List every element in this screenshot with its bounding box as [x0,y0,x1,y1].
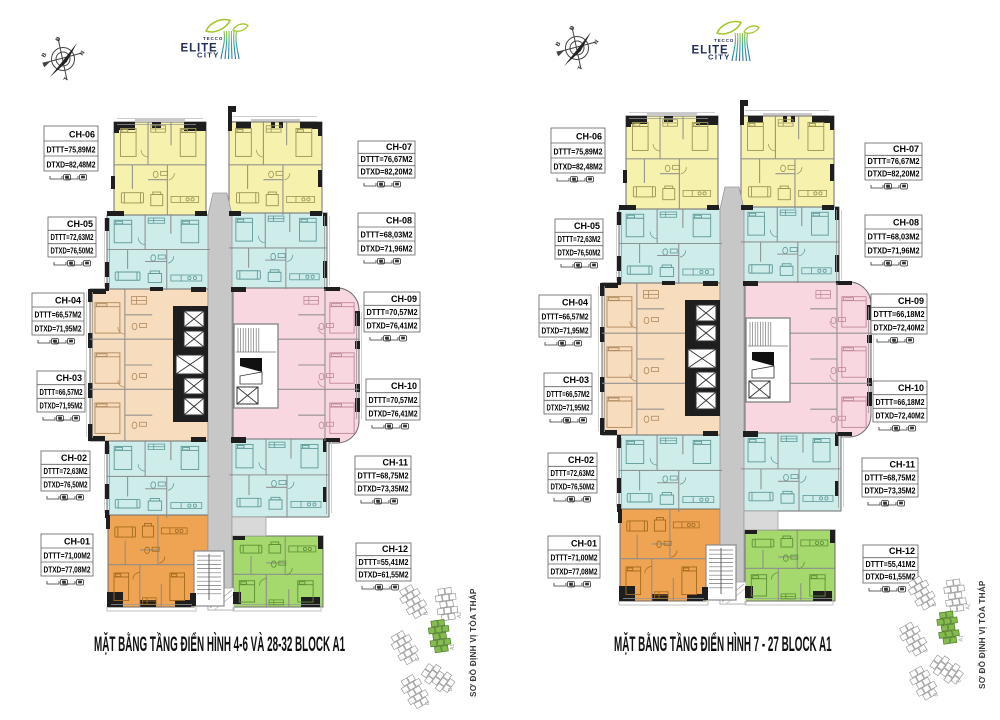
svg-text:DTXD=76,50M2: DTXD=76,50M2 [44,480,88,490]
svg-text:SƠ ĐỒ ĐỊNH VỊ TÒA THÁP: SƠ ĐỒ ĐỊNH VỊ TÒA THÁP [976,580,987,689]
svg-text:CH-03: CH-03 [56,373,82,383]
svg-text:DTXD=71,96M2: DTXD=71,96M2 [868,246,920,256]
svg-text:DTTT=66,57M2: DTTT=66,57M2 [547,389,590,399]
svg-text:DTXD=82,48M2: DTXD=82,48M2 [554,162,603,172]
svg-text:CH-02: CH-02 [61,453,87,463]
svg-text:TECCO: TECCO [203,36,223,41]
svg-text:A1: A1 [959,635,965,641]
svg-text:DTTT=70,57M2: DTTT=70,57M2 [369,395,418,405]
svg-text:DTXD=76,50M2: DTXD=76,50M2 [558,248,601,258]
svg-text:CH-06: CH-06 [69,130,95,140]
svg-text:DTTT=66,18M2: DTTT=66,18M2 [874,309,925,319]
svg-text:DTXD=76,41M2: DTXD=76,41M2 [367,321,418,331]
svg-text:DTTT=72,63M2: DTTT=72,63M2 [558,234,601,244]
svg-text:CH-08: CH-08 [386,216,412,226]
svg-text:CH-02: CH-02 [568,455,594,465]
svg-text:DTTT=55,41M2: DTTT=55,41M2 [866,559,916,569]
svg-text:CH-05: CH-05 [67,219,93,229]
svg-text:DTTT=75,89M2: DTTT=75,89M2 [47,145,96,155]
svg-text:DTTT=68,03M2: DTTT=68,03M2 [361,230,413,240]
svg-text:CH-07: CH-07 [893,144,919,154]
svg-text:DTXD=72,40M2: DTXD=72,40M2 [876,411,925,421]
svg-text:DTXD=71,96M2: DTXD=71,96M2 [361,244,413,254]
svg-text:MẶT BẰNG TẦNG ĐIỂN HÌNH 4-6 VÀ: MẶT BẰNG TẦNG ĐIỂN HÌNH 4-6 VÀ 28-32 BLO… [94,632,345,656]
svg-text:DTXD=72,40M2: DTXD=72,40M2 [874,323,925,333]
svg-text:DTXD=61,55M2: DTXD=61,55M2 [866,572,916,582]
svg-text:CH-04: CH-04 [562,298,588,308]
svg-text:DTTT=68,03M2: DTTT=68,03M2 [868,232,920,242]
svg-text:DTTT=66,57M2: DTTT=66,57M2 [35,310,82,320]
svg-text:DTTT=68,75M2: DTTT=68,75M2 [865,473,916,483]
svg-text:DTXD=71,95M2: DTXD=71,95M2 [40,401,83,411]
svg-text:CH-07: CH-07 [386,142,412,152]
svg-text:CH-05: CH-05 [574,221,600,231]
svg-text:DTXD=71,95M2: DTXD=71,95M2 [542,326,589,336]
svg-text:CH-11: CH-11 [889,460,915,470]
svg-text:DTTT=76,67M2: DTTT=76,67M2 [361,154,413,164]
svg-text:CH-09: CH-09 [391,294,417,304]
svg-text:DTXD=77,08M2: DTXD=77,08M2 [551,567,598,577]
svg-text:C: C [924,649,930,653]
svg-text:D: D [934,693,940,697]
svg-text:DTTT=72,63M2: DTTT=72,63M2 [51,232,94,242]
svg-text:CH-01: CH-01 [64,537,90,547]
svg-text:DTXD=77,08M2: DTXD=77,08M2 [44,565,91,575]
svg-text:DTTT=76,67M2: DTTT=76,67M2 [868,156,920,166]
svg-text:DTXD=71,95M2: DTXD=71,95M2 [35,324,82,334]
svg-text:DTTT=66,18M2: DTTT=66,18M2 [876,397,925,407]
svg-text:DTTT=72,63M2: DTTT=72,63M2 [44,466,88,476]
svg-text:MẶT BẰNG TẦNG ĐIỂN HÌNH 7 - 27: MẶT BẰNG TẦNG ĐIỂN HÌNH 7 - 27 BLOCK A1 [614,632,832,656]
svg-text:DTTT=71,00M2: DTTT=71,00M2 [44,551,91,561]
svg-text:DTXD=76,41M2: DTXD=76,41M2 [369,409,418,419]
svg-text:DTTT=72,63M2: DTTT=72,63M2 [551,468,595,478]
svg-text:CH-10: CH-10 [898,383,924,393]
svg-text:DTTT=55,41M2: DTTT=55,41M2 [359,557,409,567]
svg-text:DTTT=66,57M2: DTTT=66,57M2 [40,387,83,397]
svg-text:A2: A2 [966,603,972,609]
svg-text:CH-03: CH-03 [563,375,589,385]
svg-text:CH-09: CH-09 [898,296,924,306]
svg-text:DTXD=82,48M2: DTXD=82,48M2 [47,160,96,170]
svg-text:CH-12: CH-12 [889,546,915,556]
svg-text:DTXD=76,50M2: DTXD=76,50M2 [51,246,94,256]
svg-text:SƠ ĐỒ ĐỊNH VỊ TÒA THÁP: SƠ ĐỒ ĐỊNH VỊ TÒA THÁP [467,588,478,697]
svg-text:CITY: CITY [708,53,731,62]
svg-text:DTTT=70,57M2: DTTT=70,57M2 [367,307,418,317]
svg-text:CH-04: CH-04 [55,296,81,306]
svg-text:DTTT=66,57M2: DTTT=66,57M2 [542,312,589,322]
svg-text:CH-06: CH-06 [576,132,602,142]
svg-text:TECCO: TECCO [714,38,734,43]
svg-text:DTXD=82,20M2: DTXD=82,20M2 [361,167,413,177]
svg-text:A2: A2 [457,612,463,618]
svg-text:DTXD=61,55M2: DTXD=61,55M2 [359,570,409,580]
svg-text:CH-11: CH-11 [382,458,408,468]
svg-text:CH-10: CH-10 [391,381,417,391]
svg-text:DTXD=71,95M2: DTXD=71,95M2 [547,403,590,413]
svg-text:CH-08: CH-08 [893,218,919,228]
svg-text:DTXD=73,35M2: DTXD=73,35M2 [865,486,916,496]
svg-text:DTTT=75,89M2: DTTT=75,89M2 [554,147,603,157]
svg-text:CH-12: CH-12 [382,544,408,554]
svg-text:CH-01: CH-01 [571,539,597,549]
svg-text:DTTT=68,75M2: DTTT=68,75M2 [358,471,409,481]
svg-text:DTXD=82,20M2: DTXD=82,20M2 [868,169,920,179]
svg-text:DTXD=73,35M2: DTXD=73,35M2 [358,484,409,494]
svg-text:DTXD=76,50M2: DTXD=76,50M2 [551,482,595,492]
svg-text:C: C [415,657,421,661]
svg-text:DTTT=71,00M2: DTTT=71,00M2 [551,553,598,563]
svg-text:CITY: CITY [197,51,220,60]
svg-text:D: D [425,701,431,705]
svg-text:A1: A1 [450,644,456,650]
